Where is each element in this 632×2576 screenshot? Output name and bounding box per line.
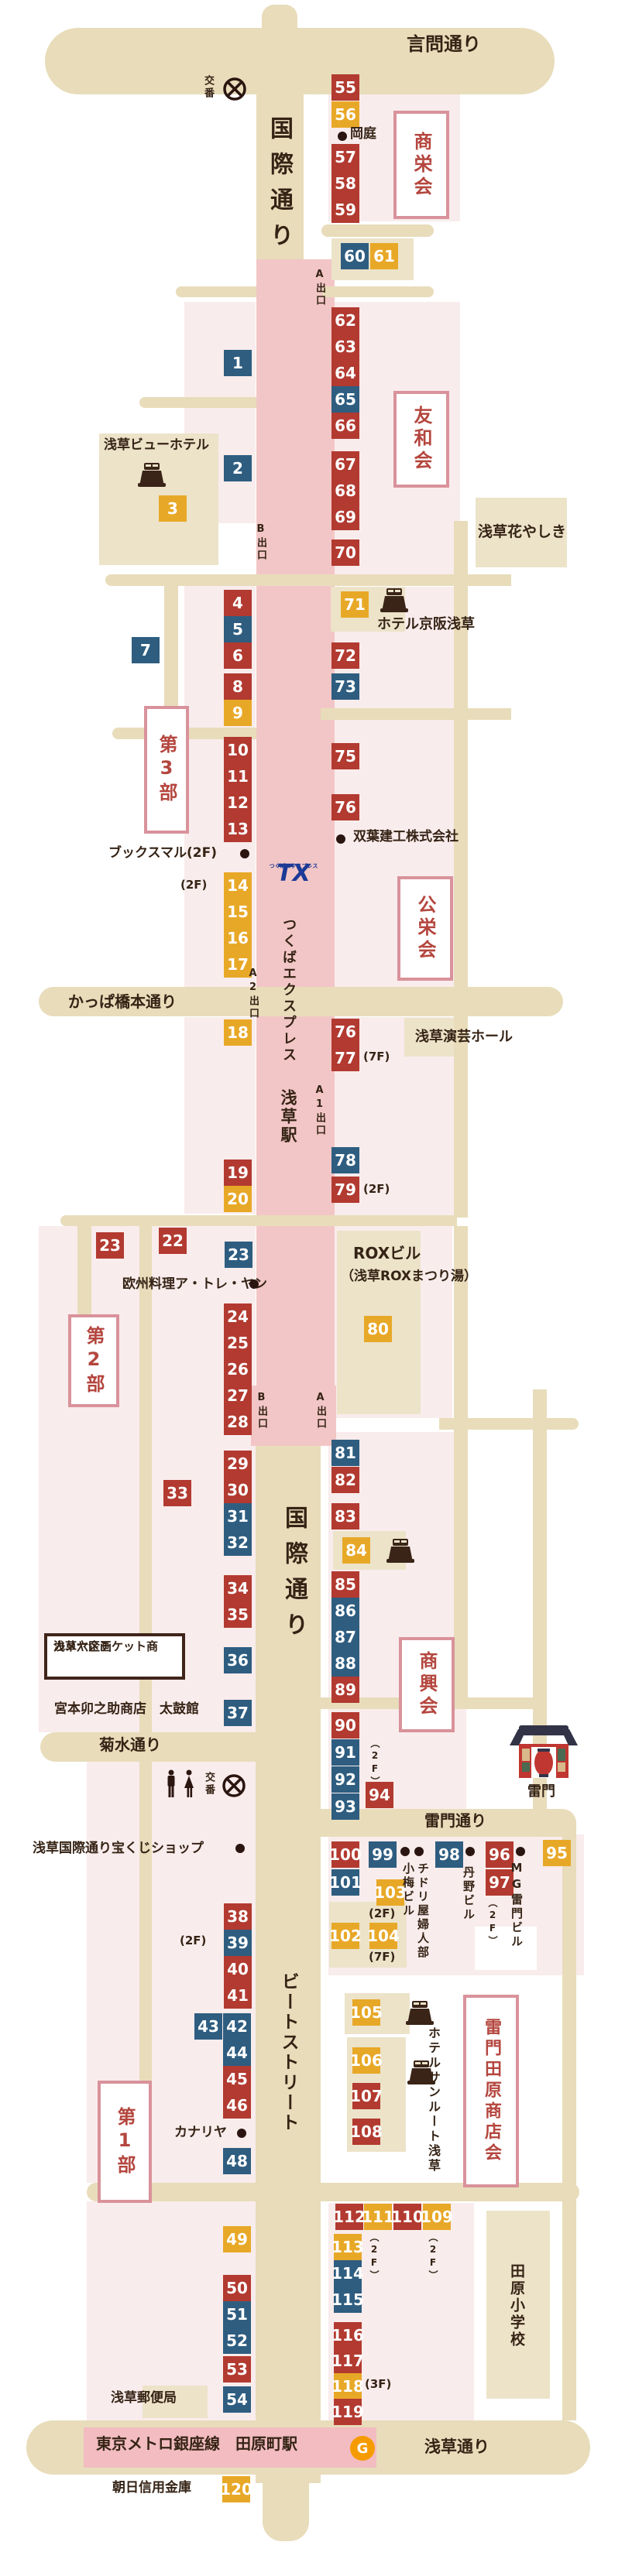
label-b-exit-top: B出口 [256, 523, 266, 562]
label-asakusa-post-office: 浅草郵便局 [111, 2391, 177, 2406]
label-2f-shop97: （2F） [488, 1898, 497, 1947]
shop-box-103[interactable]: 103 [376, 1879, 404, 1906]
label-kanariya: カナリヤ [174, 2126, 227, 2141]
shop-box-9[interactable]: 9 [224, 700, 252, 726]
shop-box-29[interactable]: 29 [224, 1451, 252, 1477]
label-ginza-line-tawaramachi: 東京メトロ銀座線 田原町駅 [96, 2435, 297, 2453]
hotel-icon [379, 588, 410, 613]
shop-box-25[interactable]: 25 [224, 1330, 252, 1356]
label-hanayashiki: 浅草花やしき [478, 524, 566, 541]
road-side [562, 1821, 576, 2420]
shop-box-79[interactable]: 79 [331, 1177, 359, 1203]
shop-box-11[interactable]: 11 [224, 763, 252, 790]
shop-box-106[interactable]: 106 [352, 2047, 380, 2074]
label-rox-matsuriyu: （浅草ROXまつり湯） [341, 1269, 477, 1285]
shop-box-19[interactable]: 19 [224, 1160, 252, 1186]
shop-box-4[interactable]: 4 [224, 590, 252, 616]
road-kokusai-dori-north-stub [262, 5, 297, 31]
area-shokokai: 商興会 [399, 1637, 455, 1732]
hotel-icon [136, 463, 167, 488]
road-side [321, 708, 511, 720]
shop-location-dot [336, 834, 345, 844]
shop-box-57[interactable]: 57 [331, 144, 359, 170]
shop-box-115[interactable]: 115 [334, 2287, 362, 2313]
shop-location-dot [338, 132, 347, 141]
label-koban-top: 交番 [203, 75, 213, 100]
association-label: 第1部 [115, 2107, 134, 2177]
label-hotel-keihan: ホテル京阪浅草 [377, 617, 475, 633]
label-miyamoto-unosuke: 宮本卯之助商店 太鼓館 [54, 1702, 199, 1718]
hotel-icon [406, 2060, 437, 2085]
shop-location-dot [516, 1847, 525, 1856]
area-dai3bu: 第3部 [144, 706, 189, 834]
shop-box-5[interactable]: 5 [224, 616, 252, 642]
shop-box-116[interactable]: 116 [334, 2322, 362, 2348]
shop-box-10[interactable]: 10 [224, 737, 252, 763]
shop-location-dot [414, 1847, 424, 1856]
shop-box-20[interactable]: 20 [224, 1186, 252, 1212]
shop-box-23[interactable]: 23 [225, 1242, 252, 1268]
shop-box-112[interactable]: 112 [335, 2204, 363, 2230]
road-side [60, 1215, 457, 1226]
association-label: 雷門田原商店会 [483, 2018, 500, 2164]
street-label-beat-street: ビートストリート [279, 1972, 297, 2133]
road-side [77, 1226, 91, 1316]
shop-box-27[interactable]: 27 [224, 1382, 252, 1409]
road-side [176, 286, 256, 297]
label-koban-kikusui: 交番 [204, 1772, 214, 1797]
shop-box-90[interactable]: 90 [331, 1712, 359, 1738]
shop-box-84[interactable]: 84 [342, 1537, 370, 1564]
shop-box-76[interactable]: 76 [331, 794, 359, 820]
label-hotel-sunroute-asakusa: ホテルサンルート浅草 [427, 2026, 439, 2173]
shop-box-38[interactable]: 38 [224, 1903, 252, 1930]
shop-box-52[interactable]: 52 [223, 2328, 251, 2354]
label-asakusa-view-hotel: 浅草ビューホテル [104, 438, 209, 454]
shop-box-104[interactable]: 104 [369, 1923, 397, 1949]
shop-location-dot [240, 849, 249, 858]
label-futaba-kenko: 双葉建工株式会社 [353, 830, 459, 845]
shop-box-50[interactable]: 50 [223, 2275, 251, 2301]
shop-box-15[interactable]: 15 [224, 899, 252, 925]
shop-location-dot [235, 1844, 245, 1853]
shop-box-44[interactable]: 44 [223, 2040, 251, 2066]
street-label-kototoi-dori: 言問通り [407, 34, 481, 56]
label-asakusa-engei-hall: 浅草演芸ホール [415, 1029, 513, 1046]
shop-box-65[interactable]: 65 [331, 386, 359, 413]
shop-box-75[interactable]: 75 [331, 743, 359, 769]
shop-box-93[interactable]: 93 [331, 1793, 359, 1820]
area-shoeikai: 商栄会 [393, 111, 449, 219]
street-label-kikusui-dori: 菊水通り [99, 1736, 161, 1754]
shop-box-30[interactable]: 30 [224, 1477, 252, 1503]
shop-box-6[interactable]: 6 [224, 642, 252, 669]
shop-box-101[interactable]: 101 [331, 1869, 359, 1896]
shop-box-91[interactable]: 91 [331, 1739, 359, 1766]
shop-box-113[interactable]: 113 [334, 2234, 362, 2260]
building-under-97 [475, 1927, 537, 1970]
shop-box-88[interactable]: 88 [331, 1650, 359, 1677]
shop-box-28[interactable]: 28 [224, 1409, 252, 1435]
label-rox-building: ROXビル [353, 1245, 421, 1262]
shop-box-78[interactable]: 78 [331, 1147, 359, 1173]
shop-box-118[interactable]: 118 [334, 2373, 362, 2400]
shop-box-105[interactable]: 105 [352, 1999, 380, 2026]
label-2f-shop39: (2F) [180, 1934, 206, 1947]
shop-box-102[interactable]: 102 [331, 1923, 359, 1949]
label-2f-shop79: (2F) [363, 1183, 390, 1196]
shop-box-72[interactable]: 72 [331, 642, 359, 669]
shop-box-53[interactable]: 53 [223, 2356, 251, 2382]
label-tawara-elementary: 田原小学校 [509, 2263, 524, 2348]
koban-icon [222, 76, 248, 102]
road-side [105, 574, 511, 586]
association-label: 商栄会 [412, 132, 431, 199]
shop-box-56[interactable]: 56 [331, 101, 359, 128]
label-koume-building: 小梅ビル [402, 1862, 414, 1918]
shop-box-68[interactable]: 68 [331, 478, 359, 504]
road-side [321, 286, 434, 297]
label-mg-kaminarimon-building: MG雷門ビル [510, 1861, 522, 1949]
shop-box-1[interactable]: 1 [224, 350, 252, 376]
street-label-kaminarimon-dori: 雷門通り [424, 1812, 486, 1830]
label-a-exit-station: A出口 [315, 1392, 325, 1430]
area-koeikai: 公栄会 [397, 876, 453, 981]
label-takarakuji-shop: 浅草国際通り宝くじショップ [33, 1841, 204, 1857]
shop-box-111[interactable]: 111 [364, 2204, 392, 2230]
shop-box-49[interactable]: 49 [223, 2226, 251, 2252]
ginza-line-icon: G [350, 2436, 375, 2461]
shop-box-42[interactable]: 42 [223, 2013, 251, 2040]
shop-location-dot [400, 1847, 410, 1856]
shop-box-95[interactable]: 95 [543, 1840, 571, 1866]
shop-box-114[interactable]: 114 [334, 2260, 362, 2287]
shop-box-61[interactable]: 61 [370, 243, 398, 269]
shop-box-83[interactable]: 83 [331, 1503, 359, 1529]
shop-box-51[interactable]: 51 [223, 2301, 251, 2328]
road-kokusai-dori-south-stub [263, 2475, 309, 2541]
shop-box-37[interactable]: 37 [224, 1700, 252, 1726]
label-okaniwa: 岡庭 [350, 127, 376, 142]
shop-box-18[interactable]: 18 [224, 1019, 252, 1046]
label-booksmaru: ブックスマル(2F) [108, 846, 217, 862]
label-2f-shop111: （2F） [369, 2232, 379, 2282]
label-2f-shop14: (2F) [180, 879, 207, 892]
label-kameya-line2: 浅草六区チケット商 [53, 1639, 158, 1655]
shop-box-2[interactable]: 2 [224, 455, 252, 481]
asakusa-kokusai-dori-shopping-map: 1234567891011121314151617181920222323242… [0, 0, 632, 2576]
shop-box-32[interactable]: 32 [224, 1529, 252, 1556]
shop-box-31[interactable]: 31 [224, 1503, 252, 1529]
road-side [139, 397, 256, 408]
shop-box-66[interactable]: 66 [331, 413, 359, 439]
association-label: 公栄会 [416, 895, 434, 962]
street-label-kappabashi-hondori: かっぱ橋本通り [68, 993, 177, 1011]
shop-box-48[interactable]: 48 [223, 2148, 251, 2174]
shop-box-71[interactable]: 71 [341, 591, 369, 618]
street-label-kokusai-dori-bottom: 国際通り [282, 1506, 305, 1648]
shop-box-33[interactable]: 33 [163, 1480, 191, 1506]
shop-box-98[interactable]: 98 [435, 1841, 463, 1868]
shop-box-81[interactable]: 81 [331, 1440, 359, 1466]
shop-box-34[interactable]: 34 [224, 1575, 252, 1601]
shop-box-62[interactable]: 62 [331, 307, 359, 334]
shop-box-63[interactable]: 63 [331, 334, 359, 360]
shop-box-107[interactable]: 107 [352, 2083, 380, 2109]
shop-box-43[interactable]: 43 [194, 2013, 222, 2040]
shop-box-119[interactable]: 119 [334, 2399, 362, 2425]
shop-box-76[interactable]: 76 [331, 1019, 359, 1045]
kaminarimon-gate-icon [508, 1724, 579, 1781]
shop-box-85[interactable]: 85 [331, 1571, 359, 1598]
association-label: 商興会 [417, 1651, 436, 1718]
label-kaminarimon: 雷門 [527, 1784, 555, 1800]
shop-box-67[interactable]: 67 [331, 451, 359, 478]
label-asakusa-station: 浅草駅 [280, 1089, 296, 1145]
shop-box-45[interactable]: 45 [223, 2066, 251, 2092]
shop-location-dot [465, 1847, 475, 1856]
shop-box-58[interactable]: 58 [331, 170, 359, 197]
shop-box-13[interactable]: 13 [224, 816, 252, 842]
shop-box-82[interactable]: 82 [331, 1467, 359, 1493]
shop-box-23[interactable]: 23 [96, 1232, 124, 1259]
road-side [454, 1226, 468, 1707]
label-oshu-ryori-atoreyan: 欧州料理ア・トレ・ヤン [122, 1277, 267, 1293]
shop-box-26[interactable]: 26 [224, 1356, 252, 1382]
shop-box-16[interactable]: 16 [224, 925, 252, 951]
label-kameya-kikaku-box: カメヤ企画 浅草六区チケット商 [44, 1633, 185, 1680]
area-yuwakai: 友和会 [393, 391, 449, 488]
shop-box-89[interactable]: 89 [331, 1677, 359, 1703]
label-3f-shop118: (3F) [365, 2378, 391, 2391]
label-chidoriya-fujinbu: チドリ屋婦人部 [417, 1862, 428, 1960]
street-label-asakusa-dori: 浅草通り [424, 2437, 489, 2456]
shop-box-100[interactable]: 100 [331, 1841, 359, 1868]
shop-box-3[interactable]: 3 [159, 495, 187, 522]
restroom-icon [164, 1769, 201, 1799]
shop-box-60[interactable]: 60 [341, 243, 369, 269]
association-label: 友和会 [412, 406, 431, 473]
shop-location-dot [237, 2129, 246, 2138]
shop-location-dot [249, 1279, 259, 1289]
koban-icon [221, 1773, 247, 1799]
label-2f-shop92: （2F） [370, 1738, 380, 1788]
street-label-kokusai-dori-top: 国際通り [267, 116, 290, 259]
shop-box-41[interactable]: 41 [224, 1982, 252, 2009]
shop-box-14[interactable]: 14 [224, 872, 252, 899]
shop-box-36[interactable]: 36 [224, 1647, 252, 1673]
shop-box-109[interactable]: 109 [423, 2204, 451, 2230]
tx-logo-subtext: つくばエクスプレス [270, 862, 318, 870]
shop-box-59[interactable]: 59 [331, 197, 359, 223]
shop-box-87[interactable]: 87 [331, 1624, 359, 1650]
area-dai1bu: 第1部 [98, 2081, 152, 2203]
road-side [321, 224, 434, 237]
association-label: 第3部 [157, 735, 176, 805]
shop-box-22[interactable]: 22 [159, 1228, 187, 1254]
shop-box-99[interactable]: 99 [369, 1841, 397, 1868]
label-tsukuba-express: つくばエクスプレス [281, 917, 295, 1064]
road-side [454, 521, 468, 988]
shop-box-55[interactable]: 55 [331, 74, 359, 101]
label-asahi-shinkin: 朝日信用金庫 [112, 2481, 191, 2496]
shop-box-77[interactable]: 77 [331, 1045, 359, 1071]
label-tanno-building: 丹野ビル [462, 1866, 474, 1922]
ginza-line-letter: G [357, 2441, 369, 2457]
shop-box-108[interactable]: 108 [352, 2119, 380, 2145]
shop-box-12[interactable]: 12 [224, 790, 252, 816]
shop-box-24[interactable]: 24 [224, 1303, 252, 1330]
shop-box-46[interactable]: 46 [223, 2092, 251, 2119]
area-kaminarimon-tawara: 雷門田原商店会 [463, 1995, 519, 2187]
road-side [454, 1016, 468, 1218]
hotel-icon [385, 1539, 416, 1564]
shop-box-70[interactable]: 70 [331, 540, 359, 566]
shop-box-80[interactable]: 80 [364, 1316, 392, 1342]
shop-box-8[interactable]: 8 [224, 673, 252, 700]
label-2f-shop109: （2F） [428, 2232, 438, 2282]
shop-box-73[interactable]: 73 [331, 673, 359, 700]
shop-box-39[interactable]: 39 [224, 1930, 252, 1956]
label-a-exit-top: A出口 [314, 269, 325, 307]
shop-box-64[interactable]: 64 [331, 360, 359, 386]
shop-box-110[interactable]: 110 [393, 2204, 421, 2230]
label-a2-exit: A2出口 [248, 968, 258, 1020]
shop-box-35[interactable]: 35 [224, 1601, 252, 1628]
shop-box-86[interactable]: 86 [331, 1598, 359, 1624]
shop-box-40[interactable]: 40 [224, 1956, 252, 1982]
shop-box-7[interactable]: 7 [132, 637, 160, 663]
road-side [439, 1418, 579, 1430]
shop-box-120[interactable]: 120 [222, 2476, 250, 2502]
area-dai2bu: 第2部 [68, 1314, 119, 1407]
label-7f-shop104: (7F) [369, 1951, 395, 1964]
label-a1-exit: A1出口 [314, 1084, 325, 1137]
shop-box-54[interactable]: 54 [223, 2386, 251, 2413]
label-7f-shop77: (7F) [363, 1050, 390, 1064]
shop-box-69[interactable]: 69 [331, 504, 359, 530]
label-b-exit-station: B出口 [256, 1392, 266, 1430]
association-label: 第2部 [84, 1326, 103, 1396]
shop-box-117[interactable]: 117 [334, 2348, 362, 2374]
hotel-icon [404, 2001, 435, 2026]
label-2f-shop103: (2F) [369, 1907, 395, 1920]
shop-box-92[interactable]: 92 [331, 1766, 359, 1793]
